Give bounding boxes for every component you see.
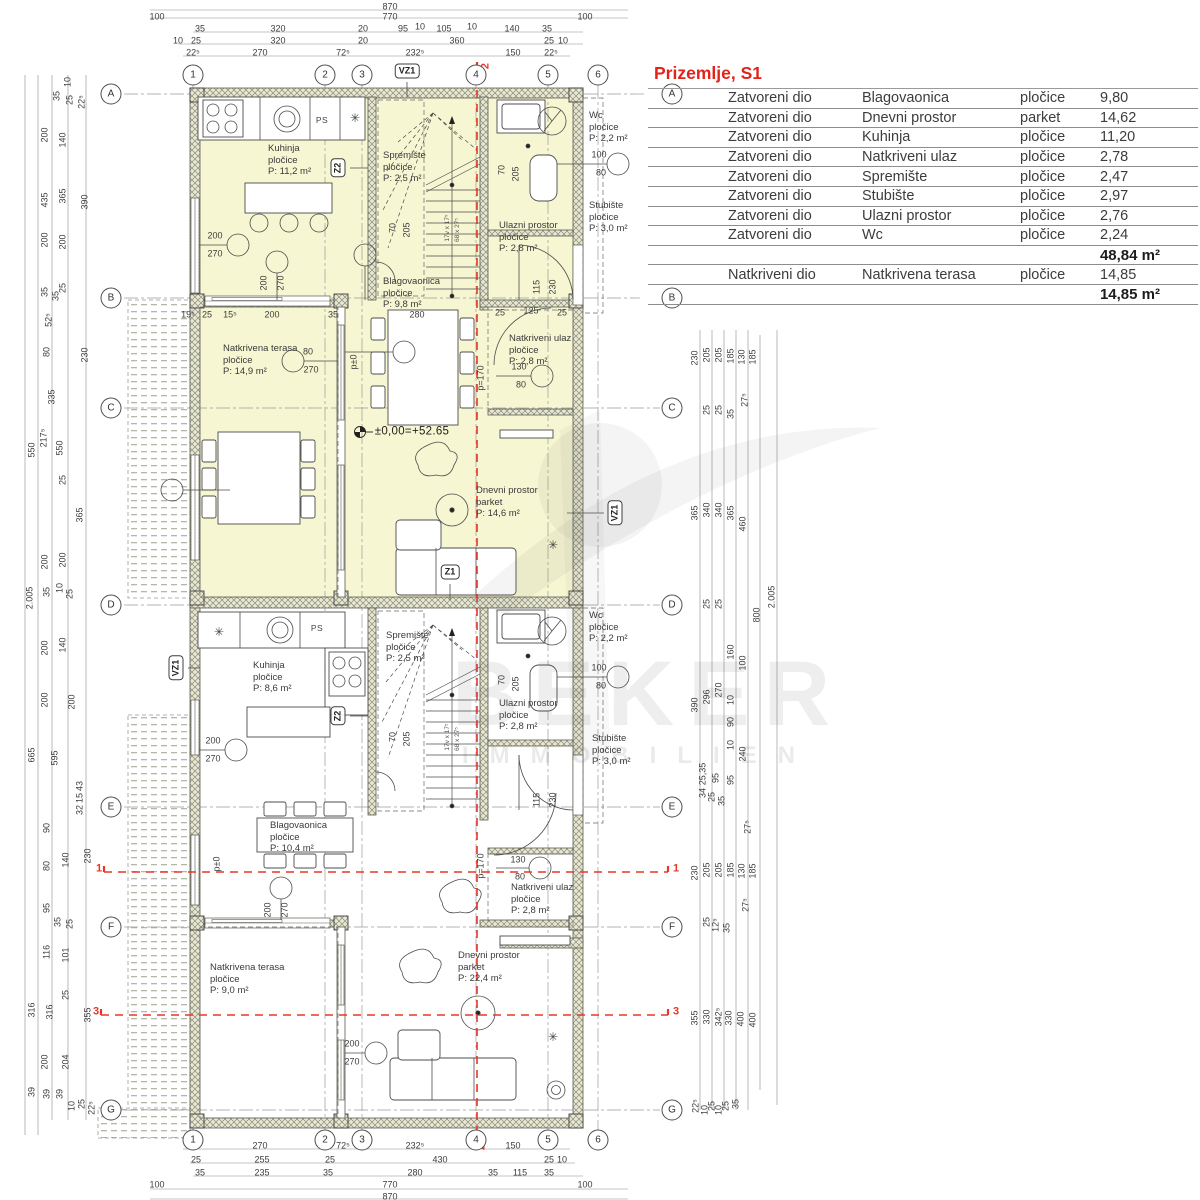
grid-bubble-6: 6 (588, 65, 609, 86)
area-table-cell: 14,85 (1100, 267, 1198, 283)
dim-label: 20 (358, 37, 368, 46)
dim-label: 800 (753, 607, 762, 622)
dim-label: 280 (409, 311, 424, 320)
room-label: Ulazni prostorpločiceP: 2,8 m² (499, 220, 558, 255)
dim-label: 365 (59, 188, 68, 203)
dim-label: 2.005 (26, 587, 35, 610)
dim-label: 217⁵ (40, 429, 49, 448)
dim-label: 52⁵ (45, 313, 54, 327)
z1-ref: Z1 (441, 565, 460, 580)
room-label: KuhinjapločiceP: 8,6 m² (253, 660, 292, 695)
room-label: SpremištepločiceP: 2,5 m² (386, 630, 429, 665)
dim-label: 550 (28, 442, 37, 457)
room-label: StubištepločiceP: 3,0 m² (589, 200, 628, 235)
dim-label: 205 (715, 347, 724, 362)
dim-label: 72⁵ (336, 1142, 350, 1151)
area-table-cell: parket (1020, 110, 1100, 126)
dim-label: 25 (715, 599, 724, 609)
vz1-ref: VZ1 (608, 501, 623, 526)
area-table-cell: Natkrivena terasa (862, 267, 1020, 283)
dim-label: 185 (749, 349, 758, 364)
room-label: WcpločiceP: 2,2 m² (589, 110, 628, 145)
dim-label: PS (316, 116, 328, 125)
grid-bubble-5: 5 (538, 65, 559, 86)
dim-label: 330 (725, 1010, 734, 1025)
area-table-cell: Spremište (862, 169, 1020, 185)
dim-label: 150 (505, 1142, 520, 1151)
dim-label: 27⁵ (742, 898, 751, 912)
dim-label: 200 (264, 311, 279, 320)
dim-label: 105 (436, 25, 451, 34)
dim-label: 35 (43, 587, 52, 597)
dim-label: 200 (264, 902, 273, 917)
area-table-cell: Zatvoreni dio (728, 169, 862, 185)
area-table-cell: pločice (1020, 169, 1100, 185)
dim-label: 10 (727, 740, 736, 750)
dim-label: 390 (691, 697, 700, 712)
dim-label: 25 (59, 475, 68, 485)
dim-label: 595 (51, 750, 60, 765)
dim-label: 100 (577, 13, 592, 22)
dim-label: 25 (703, 405, 712, 415)
area-table-cell: Natkriveni dio (728, 267, 862, 283)
dim-label: 80 (515, 873, 525, 882)
area-table-cell: Stubište (862, 188, 1020, 204)
dim-label: 230 (84, 848, 93, 863)
area-table-cell: 2,24 (1100, 227, 1198, 243)
dim-label: 20 (358, 25, 368, 34)
dim-label: 230 (549, 792, 558, 807)
area-table-cell: Zatvoreni dio (728, 129, 862, 145)
dim-label: 200 (260, 275, 269, 290)
grid-bubble-E: E (101, 797, 122, 818)
dim-label: 27⁵ (741, 393, 750, 407)
room-label: WcpločiceP: 2,2 m² (589, 610, 628, 645)
area-table-cell: pločice (1020, 188, 1100, 204)
dim-label: 35 (195, 1169, 205, 1178)
dim-label: ✳ (214, 626, 224, 638)
dim-label: 25 (202, 311, 212, 320)
dim-label: 296 (703, 689, 712, 704)
dim-label: 200 (41, 692, 50, 707)
area-table-cell: pločice (1020, 149, 1100, 165)
dim-label: 355 (84, 1007, 93, 1022)
dim-label: ✳ (350, 112, 360, 124)
area-table-cell: Natkriveni ulaz (862, 149, 1020, 165)
dim-label: 316 (46, 1004, 55, 1019)
area-table-row: Zatvoreni dioUlazni prostorpločice2,76 (648, 207, 1198, 227)
room-label: StubištepločiceP: 3,0 m² (592, 733, 631, 768)
dim-label: 10 (558, 37, 568, 46)
dim-label: p±0 (213, 857, 222, 872)
dim-label: 27⁵ (744, 820, 753, 834)
dim-label: 400 (749, 1012, 758, 1027)
dim-label: 550 (56, 440, 65, 455)
z2-ref: Z2 (331, 159, 346, 178)
dim-label: 205 (403, 731, 412, 746)
dim-label: 100 (149, 13, 164, 22)
area-table-sum-row: 48,84 m² (648, 246, 1198, 266)
dim-label: 205 (512, 166, 521, 181)
dim-label: 115 (533, 280, 542, 294)
area-table-cell: pločice (1020, 267, 1100, 283)
area-table-cell: Kuhinja (862, 129, 1020, 145)
dim-label: 25 (544, 37, 554, 46)
dim-label: 140 (59, 132, 68, 147)
dim-label: 35 (53, 91, 62, 101)
area-table-row: Zatvoreni dioBlagovaonicapločice9,80 (648, 89, 1198, 109)
dim-label: 25 (191, 37, 201, 46)
dim-label: 22⁵ (186, 49, 200, 58)
dim-label: 25 (557, 309, 567, 318)
dim-label: 25 (66, 919, 75, 929)
dim-label: 205 (512, 676, 521, 691)
dim-label: 15 (76, 793, 85, 803)
section-3-left: 3 (93, 1007, 99, 1018)
dim-label: 43 (76, 781, 85, 791)
grid-bubble-4: 4 (466, 65, 487, 86)
area-table-row: Zatvoreni dioWcpločice2,24 (648, 226, 1198, 246)
dim-label: 200 (205, 737, 220, 746)
dim-label: 80 (43, 861, 52, 871)
dim-label: 25 (66, 95, 75, 105)
dim-label: 200 (59, 234, 68, 249)
dim-label: 205 (703, 347, 712, 362)
dim-label: 95 (398, 25, 408, 34)
dim-label: 140 (504, 25, 519, 34)
grid-bubble-C: C (662, 398, 683, 419)
dim-label: 35 (323, 1169, 333, 1178)
dim-label: 10 (467, 23, 477, 32)
dim-label: 68 x 27⁵ (455, 218, 462, 242)
dim-label: 430 (432, 1156, 447, 1165)
room-label: KuhinjapločiceP: 11,2 m² (268, 143, 311, 178)
dim-label: 90 (43, 823, 52, 833)
dim-label: 19⁵ (181, 311, 195, 320)
area-table-cell: Zatvoreni dio (728, 188, 862, 204)
dim-label: 95 (43, 903, 52, 913)
dim-label: 320 (270, 37, 285, 46)
room-label: Natkriveni ulazpločiceP: 2,8 m² (511, 882, 573, 917)
vz1-ref: VZ1 (395, 64, 420, 79)
area-table-cell: Blagovaonica (862, 90, 1020, 106)
dim-label: p±0 (350, 355, 359, 370)
area-table-cell: pločice (1020, 208, 1100, 224)
dim-label: 150 (505, 49, 520, 58)
dim-label: 200 (41, 127, 50, 142)
room-label: Dnevni prostorparketP: 22,4 m² (458, 950, 520, 985)
dim-label: 25 (708, 792, 717, 802)
grid-bubble-E: E (662, 797, 683, 818)
dim-label: 232⁵ (406, 49, 425, 58)
grid-bubble-1: 1 (183, 1130, 204, 1151)
dim-label: 870 (382, 1193, 397, 1200)
dim-label: 10 (173, 37, 183, 46)
dim-label: 72⁵ (336, 49, 350, 58)
dim-label: 95 (727, 775, 736, 785)
dim-label: 230 (691, 865, 700, 880)
dim-label: 35 (195, 25, 205, 34)
dim-label: 365 (76, 507, 85, 522)
dim-label: 10 (415, 23, 425, 32)
dim-label: 435 (41, 192, 50, 207)
dim-label: 25 (191, 1156, 201, 1165)
dim-label: 80 (596, 169, 606, 178)
dim-label: 35 (718, 796, 727, 806)
dim-label: 130 (738, 349, 747, 364)
dim-label: 35 (727, 409, 736, 419)
dim-label: 200 (41, 554, 50, 569)
dim-label: 270 (715, 682, 724, 697)
area-table-cell: Wc (862, 227, 1020, 243)
grid-bubble-D: D (662, 595, 683, 616)
dim-label: 230 (549, 279, 558, 294)
dim-label: 270 (252, 49, 267, 58)
dim-label: ✳ (548, 1031, 558, 1043)
dim-label: ✳ (548, 539, 558, 551)
area-table-row: Zatvoreni dioNatkriveni ulazpločice2,78 (648, 148, 1198, 168)
dim-label: 204 (62, 1054, 71, 1069)
z2-ref: Z2 (331, 707, 346, 726)
dim-label: 100 (149, 1181, 164, 1190)
dim-label: 270 (303, 366, 318, 375)
section-1-left: 1 (96, 864, 102, 875)
grid-bubble-G: G (101, 1100, 122, 1121)
dim-label: 200 (41, 1054, 50, 1069)
dim-label: 100 (591, 151, 606, 160)
dim-label: 160 (727, 644, 736, 659)
dim-label: 70 (498, 675, 507, 685)
dim-label: 270 (277, 275, 286, 290)
dim-label: 200 (344, 1040, 359, 1049)
room-label: Ulazni prostorpločiceP: 2,8 m² (499, 698, 558, 733)
area-table-row: Zatvoreni dioKuhinjapločice11,20 (648, 128, 1198, 148)
dim-label: 200 (207, 232, 222, 241)
dim-label: p=170 (477, 853, 486, 878)
area-table-row: Natkriveni dioNatkrivena terasapločice14… (648, 265, 1198, 285)
dim-label: 25 (66, 589, 75, 599)
dim-label: 355 (691, 1010, 700, 1025)
dim-label: 80 (43, 347, 52, 357)
dim-label: 200 (41, 232, 50, 247)
area-table-row: Zatvoreni dioStubištepločice2,97 (648, 187, 1198, 207)
area-table-cell: pločice (1020, 90, 1100, 106)
dim-label: 232⁵ (406, 1142, 425, 1151)
dim-label: 70 (389, 732, 398, 742)
dim-label: 22⁵ (544, 49, 558, 58)
grid-bubble-3: 3 (352, 1130, 373, 1151)
area-table-cell: Zatvoreni dio (728, 149, 862, 165)
area-table-cell: Dnevni prostor (862, 110, 1020, 126)
dim-label: 140 (62, 852, 71, 867)
dim-label: 2.005 (768, 586, 777, 609)
dim-label: 870 (382, 3, 397, 12)
dim-label: 115 (513, 1169, 527, 1178)
dim-label: ±0,00=+52.65 (375, 426, 450, 438)
dim-label: 340 (715, 502, 724, 517)
grid-bubble-3: 3 (352, 65, 373, 86)
dim-label: 235 (254, 1169, 269, 1178)
dim-label: 255 (254, 1156, 269, 1165)
dim-label: 205 (703, 862, 712, 877)
dim-label: 340 (703, 502, 712, 517)
dim-label: 342⁵ (715, 1008, 724, 1027)
dim-label: 100 (577, 1181, 592, 1190)
dim-label: 125 (523, 307, 538, 316)
grid-bubble-1: 1 (183, 65, 204, 86)
dim-label: 316 (28, 1002, 37, 1017)
area-table-cell: 9,80 (1100, 90, 1198, 106)
section-3-right: 3 (673, 1007, 679, 1018)
dim-label: 10 (727, 695, 736, 705)
dim-label: 17v x 17⁵ (445, 723, 452, 750)
area-table-cell: 2,76 (1100, 208, 1198, 224)
dim-label: 270 (344, 1058, 359, 1067)
dim-label: 10 (64, 77, 73, 87)
dim-label: 185 (727, 862, 736, 877)
dim-label: 70 (498, 165, 507, 175)
dim-label: 320 (270, 25, 285, 34)
dim-label: 116 (43, 945, 52, 959)
dim-label: 35 (41, 287, 50, 297)
dim-label: 80 (596, 682, 606, 691)
grid-bubble-2: 2 (315, 1130, 336, 1151)
grid-bubble-4: 4 (466, 1130, 487, 1151)
grid-bubble-A: A (101, 84, 122, 105)
dim-label: p=170 (477, 365, 486, 390)
dim-label: 17v x 17⁵ (445, 214, 452, 241)
dim-label: 270 (205, 755, 220, 764)
dim-label: 200 (68, 694, 77, 709)
area-table-cell: 11,20 (1100, 129, 1198, 145)
dim-label: 70 (389, 223, 398, 233)
dim-label: 35 (52, 291, 61, 301)
dim-label: 15⁵ (223, 311, 237, 320)
dim-label: 80 (303, 348, 313, 357)
dim-label: 400 (737, 1011, 746, 1026)
area-table-cell: Zatvoreni dio (728, 110, 862, 126)
dim-label: 100 (591, 664, 606, 673)
grid-bubble-6: 6 (588, 1130, 609, 1151)
dim-label: 270 (252, 1142, 267, 1151)
dim-label: 22⁵ (78, 95, 87, 109)
dim-label: 35 (723, 923, 732, 933)
dim-label: 10 (68, 1101, 77, 1111)
dim-label: PS (311, 624, 323, 633)
dim-label: 68 x 27⁵ (455, 727, 462, 751)
dim-label: 35 (732, 1099, 741, 1109)
dim-label: 25,35 (699, 763, 708, 786)
dim-label: 770 (382, 1181, 397, 1190)
dim-label: 35 (488, 1169, 498, 1178)
dim-label: 35 (54, 917, 63, 927)
dim-label: 390 (81, 194, 90, 209)
dim-label: 330 (703, 1009, 712, 1024)
dim-label: 39 (43, 1089, 52, 1099)
grid-bubble-D: D (101, 595, 122, 616)
dim-label: 35 (328, 311, 338, 320)
dim-label: 35 (544, 1169, 554, 1178)
dim-label: 12⁵ (712, 918, 721, 932)
area-table-cell: 2,78 (1100, 149, 1198, 165)
grid-bubble-B: B (101, 288, 122, 309)
grid-bubble-C: C (101, 398, 122, 419)
dim-label: 25 (722, 1101, 731, 1111)
dim-label: 240 (739, 746, 748, 761)
area-table-cell: Ulazni prostor (862, 208, 1020, 224)
grid-bubble-G: G (662, 1100, 683, 1121)
dim-label: 32 (76, 805, 85, 815)
dim-label: 25 (544, 1156, 554, 1165)
section-1-right: 1 (673, 864, 679, 875)
dim-label: 95 (712, 773, 721, 783)
dim-label: 365 (727, 505, 736, 520)
room-label: SpremištepločiceP: 2,5 m² (383, 150, 426, 185)
dim-label: 22⁵ (88, 1101, 97, 1115)
dim-label: 130 (738, 863, 747, 878)
area-table-rows: Zatvoreni dioBlagovaonicapločice9,80Zatv… (648, 89, 1198, 305)
dim-label: 360 (449, 37, 464, 46)
dim-label: 200 (41, 640, 50, 655)
dim-label: 80 (516, 381, 526, 390)
room-label: Natkrivena terasapločiceP: 9,0 m² (210, 962, 284, 997)
area-table-cell: 14,62 (1100, 110, 1198, 126)
dim-label: 10 (557, 1156, 567, 1165)
area-table-cell: pločice (1020, 129, 1100, 145)
room-label: BlagovaonicapločiceP: 10,4 m² (270, 820, 327, 855)
dim-label: 770 (382, 13, 397, 22)
area-table-cell: Zatvoreni dio (728, 208, 862, 224)
dim-label: 10 (56, 583, 65, 593)
dim-label: 25 (495, 309, 505, 318)
dim-label: 100 (739, 655, 748, 670)
area-table-cell: pločice (1020, 227, 1100, 243)
grid-bubble-2: 2 (315, 65, 336, 86)
area-table-row: Zatvoreni dioDnevni prostorparket14,62 (648, 109, 1198, 129)
dim-label: 25 (325, 1156, 335, 1165)
area-table-cell: Zatvoreni dio (728, 90, 862, 106)
dim-label: 205 (715, 862, 724, 877)
grid-bubble-5: 5 (538, 1130, 559, 1151)
dim-label: 25 (78, 1099, 87, 1109)
dim-label: 39 (28, 1087, 37, 1097)
room-label: Natkrivena terasapločiceP: 14,9 m² (223, 343, 297, 378)
grid-bubble-F: F (101, 917, 122, 938)
dim-label: 115 (533, 793, 542, 807)
dim-label: 130 (510, 856, 525, 865)
dim-label: 25 (715, 405, 724, 415)
dim-label: 200 (59, 552, 68, 567)
area-table-row: Zatvoreni dioSpremištepločice2,47 (648, 167, 1198, 187)
dim-label: 90 (727, 717, 736, 727)
vz1-ref: VZ1 (169, 656, 184, 681)
dim-label: 25 (62, 990, 71, 1000)
room-label: Dnevni prostorparketP: 14,6 m² (476, 485, 538, 520)
dim-label: 335 (48, 389, 57, 404)
dim-label: 230 (691, 350, 700, 365)
area-table-cell: 2,47 (1100, 169, 1198, 185)
grid-bubble-F: F (662, 917, 683, 938)
dim-label: 270 (281, 902, 290, 917)
area-table-sum-row: 14,85 m² (648, 285, 1198, 305)
area-table: Prizemlje, S1 Zatvoreni dioBlagovaonicap… (648, 62, 1198, 305)
room-label: Natkriveni ulazpločiceP: 2,8 m² (509, 333, 571, 368)
dim-label: 230 (81, 347, 90, 362)
dim-label: 39 (56, 1089, 65, 1099)
room-label: BlagovaonicapločiceP: 9,8 m² (383, 276, 440, 311)
dim-label: 280 (407, 1169, 422, 1178)
area-table-cell: 2,97 (1100, 188, 1198, 204)
